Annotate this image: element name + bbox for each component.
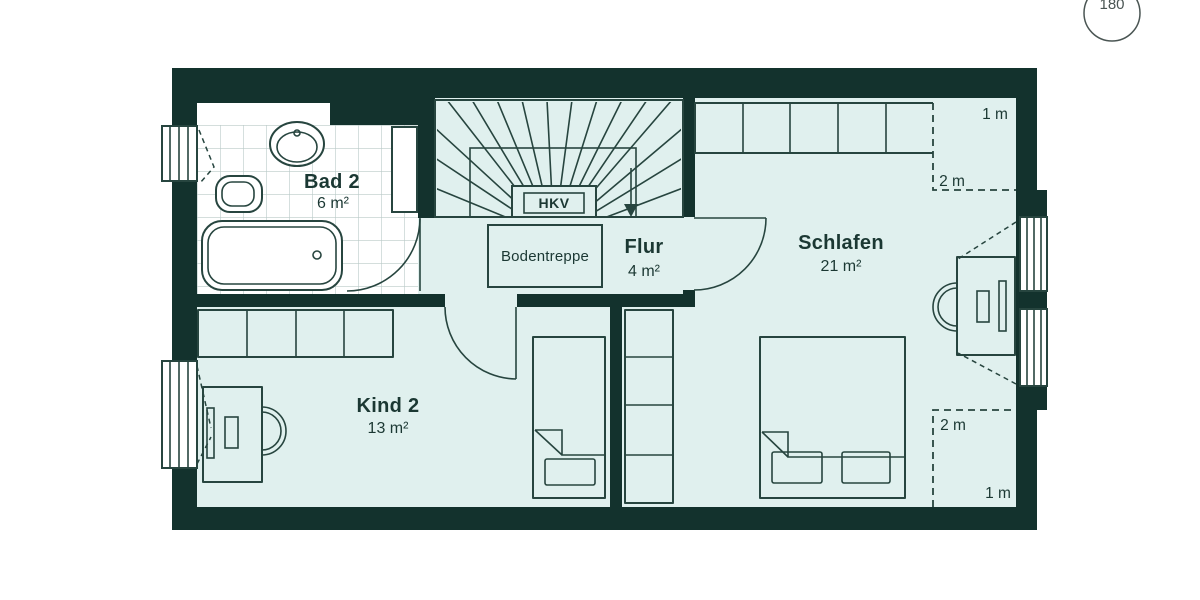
bodentreppe-label: Bodentreppe [501,248,589,265]
flur-name: Flur [625,236,664,258]
dim-1m-bottom: 1 m [985,485,1011,502]
wall-flur-bottom-right [517,294,695,307]
bodentreppe-box: Bodentreppe [488,225,602,287]
sink [270,122,324,166]
toilet [216,176,262,212]
wall-kind2-right [610,307,622,507]
floor-plan: HKV Bad 2 6 m² [0,0,1200,600]
radiator [392,127,417,212]
wall-schlafen-stub [683,290,695,307]
wall-schlafen-left [683,98,695,217]
staircase: HKV [435,100,683,237]
scale-badge-label: 180 [1099,0,1124,13]
hkv-label: HKV [538,195,569,211]
bathtub [202,221,342,290]
kind2-area: 13 m² [368,420,410,437]
window-kind2-left [162,361,197,468]
schlafen-area: 21 m² [821,258,863,275]
window-schlafen-right-1 [1020,217,1047,291]
schlafen-name: Schlafen [798,232,884,254]
bad2-area: 6 m² [317,195,350,212]
window-schlafen-right-2 [1020,309,1047,386]
scale-badge: 180 [1084,0,1140,41]
dim-2m-bottom: 2 m [940,417,966,434]
kind2-name: Kind 2 [357,395,420,417]
flur-area: 4 m² [628,263,661,280]
hkv-box: HKV [512,186,596,217]
wall-flur-bottom-left [197,294,445,307]
wall-bath-right [418,98,435,218]
roof-window [197,103,330,125]
dim-1m-top: 1 m [982,106,1008,123]
dim-2m-top: 2 m [939,173,965,190]
window-bath-left [162,126,197,181]
bad2-name: Bad 2 [304,171,360,193]
